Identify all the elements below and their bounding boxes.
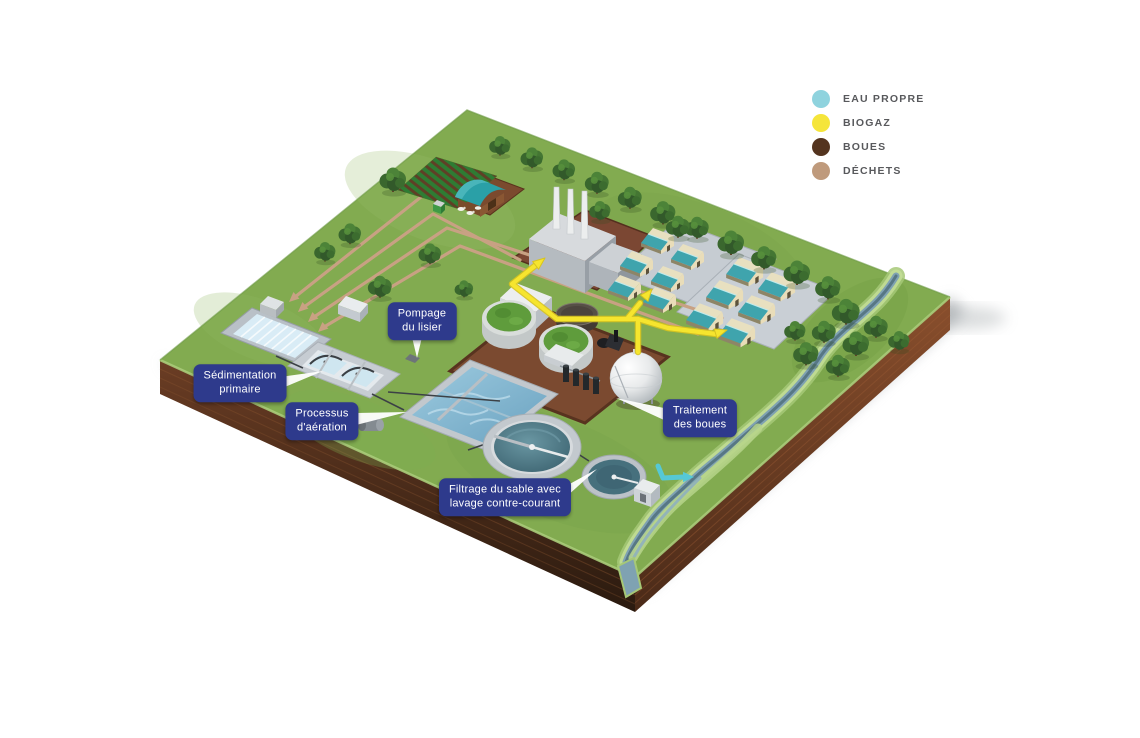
callout-pompage-du-lisier: Pompage du lisier (388, 302, 457, 340)
scene-illustration (0, 0, 1140, 738)
legend-dot-eau-propre-icon (812, 90, 830, 108)
callout-processus-aeration: Processus d'aération (285, 402, 358, 440)
digester-tank-1 (482, 300, 536, 349)
callout-sedimentation-primaire: Sédimentation primaire (194, 364, 287, 402)
legend-item-eau-propre: EAU PROPRE (812, 90, 924, 108)
legend-label-dechets: DÉCHETS (843, 165, 902, 177)
callout-filtrage-du-sable: Filtrage du sable avec lavage contre-cou… (439, 478, 571, 516)
legend-item-biogaz: BIOGAZ (812, 114, 924, 132)
legend-item-boues: BOUES (812, 138, 924, 156)
chimney (553, 187, 560, 229)
legend-label-biogaz: BIOGAZ (843, 117, 891, 129)
clarifier-large (483, 414, 581, 480)
legend-dot-boues-icon (812, 138, 830, 156)
legend-label-boues: BOUES (843, 141, 886, 153)
chimney (567, 189, 574, 234)
legend-dot-dechets-icon (812, 162, 830, 180)
legend-label-eau-propre: EAU PROPRE (843, 93, 924, 105)
callout-traitement-des-boues: Traitement des boues (663, 399, 737, 437)
legend-dot-biogaz-icon (812, 114, 830, 132)
infographic-canvas: Pompage du lisier Sédimentation primaire… (0, 0, 1140, 738)
chimney (581, 191, 588, 239)
legend-item-dechets: DÉCHETS (812, 162, 924, 180)
legend: EAU PROPRE BIOGAZ BOUES DÉCHETS (812, 90, 924, 186)
